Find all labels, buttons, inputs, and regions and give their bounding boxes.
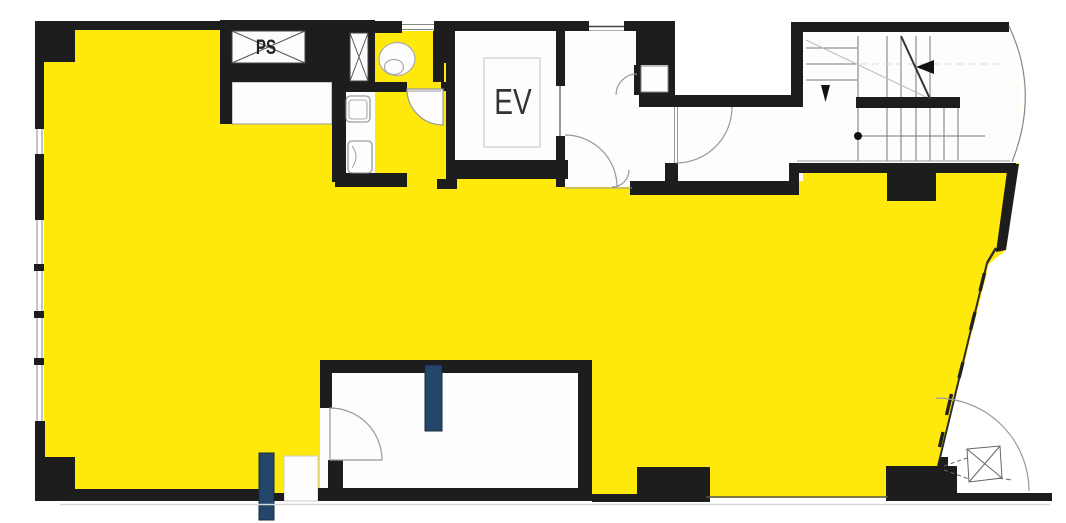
svg-text:EV: EV <box>494 82 532 122</box>
svg-text:PS: PS <box>256 34 276 58</box>
